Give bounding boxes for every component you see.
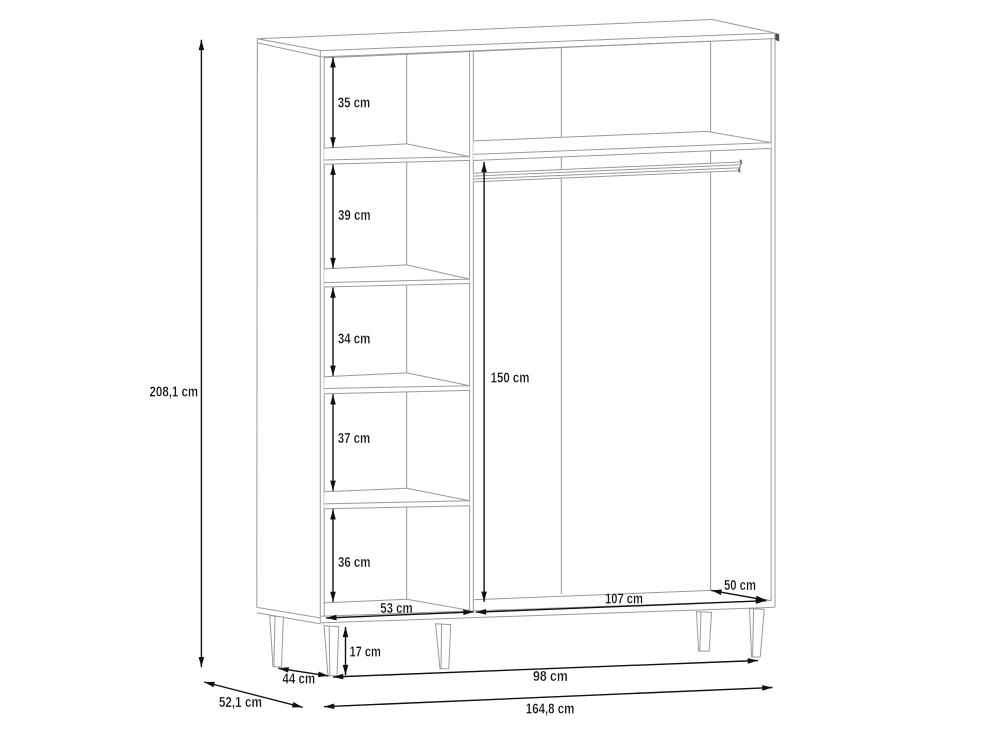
svg-text:44 cm: 44 cm — [282, 671, 315, 688]
svg-text:34 cm: 34 cm — [338, 330, 371, 347]
svg-text:50 cm: 50 cm — [724, 577, 756, 594]
svg-text:208,1 cm: 208,1 cm — [150, 383, 199, 400]
svg-text:107 cm: 107 cm — [605, 590, 643, 607]
svg-text:17 cm: 17 cm — [349, 644, 381, 661]
svg-text:98 cm: 98 cm — [533, 668, 568, 685]
svg-text:150 cm: 150 cm — [491, 369, 530, 386]
svg-text:35 cm: 35 cm — [338, 94, 371, 111]
svg-text:52,1 cm: 52,1 cm — [219, 694, 262, 711]
svg-text:39 cm: 39 cm — [338, 207, 371, 224]
svg-text:37 cm: 37 cm — [338, 430, 371, 447]
svg-text:36 cm: 36 cm — [338, 554, 371, 571]
svg-text:53 cm: 53 cm — [380, 600, 413, 617]
svg-text:164,8 cm: 164,8 cm — [526, 700, 575, 717]
